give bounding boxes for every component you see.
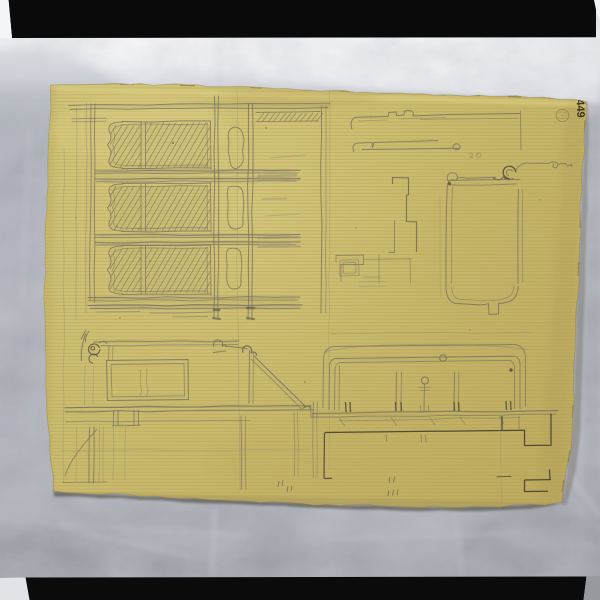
- svg-text:449: 449: [574, 99, 587, 118]
